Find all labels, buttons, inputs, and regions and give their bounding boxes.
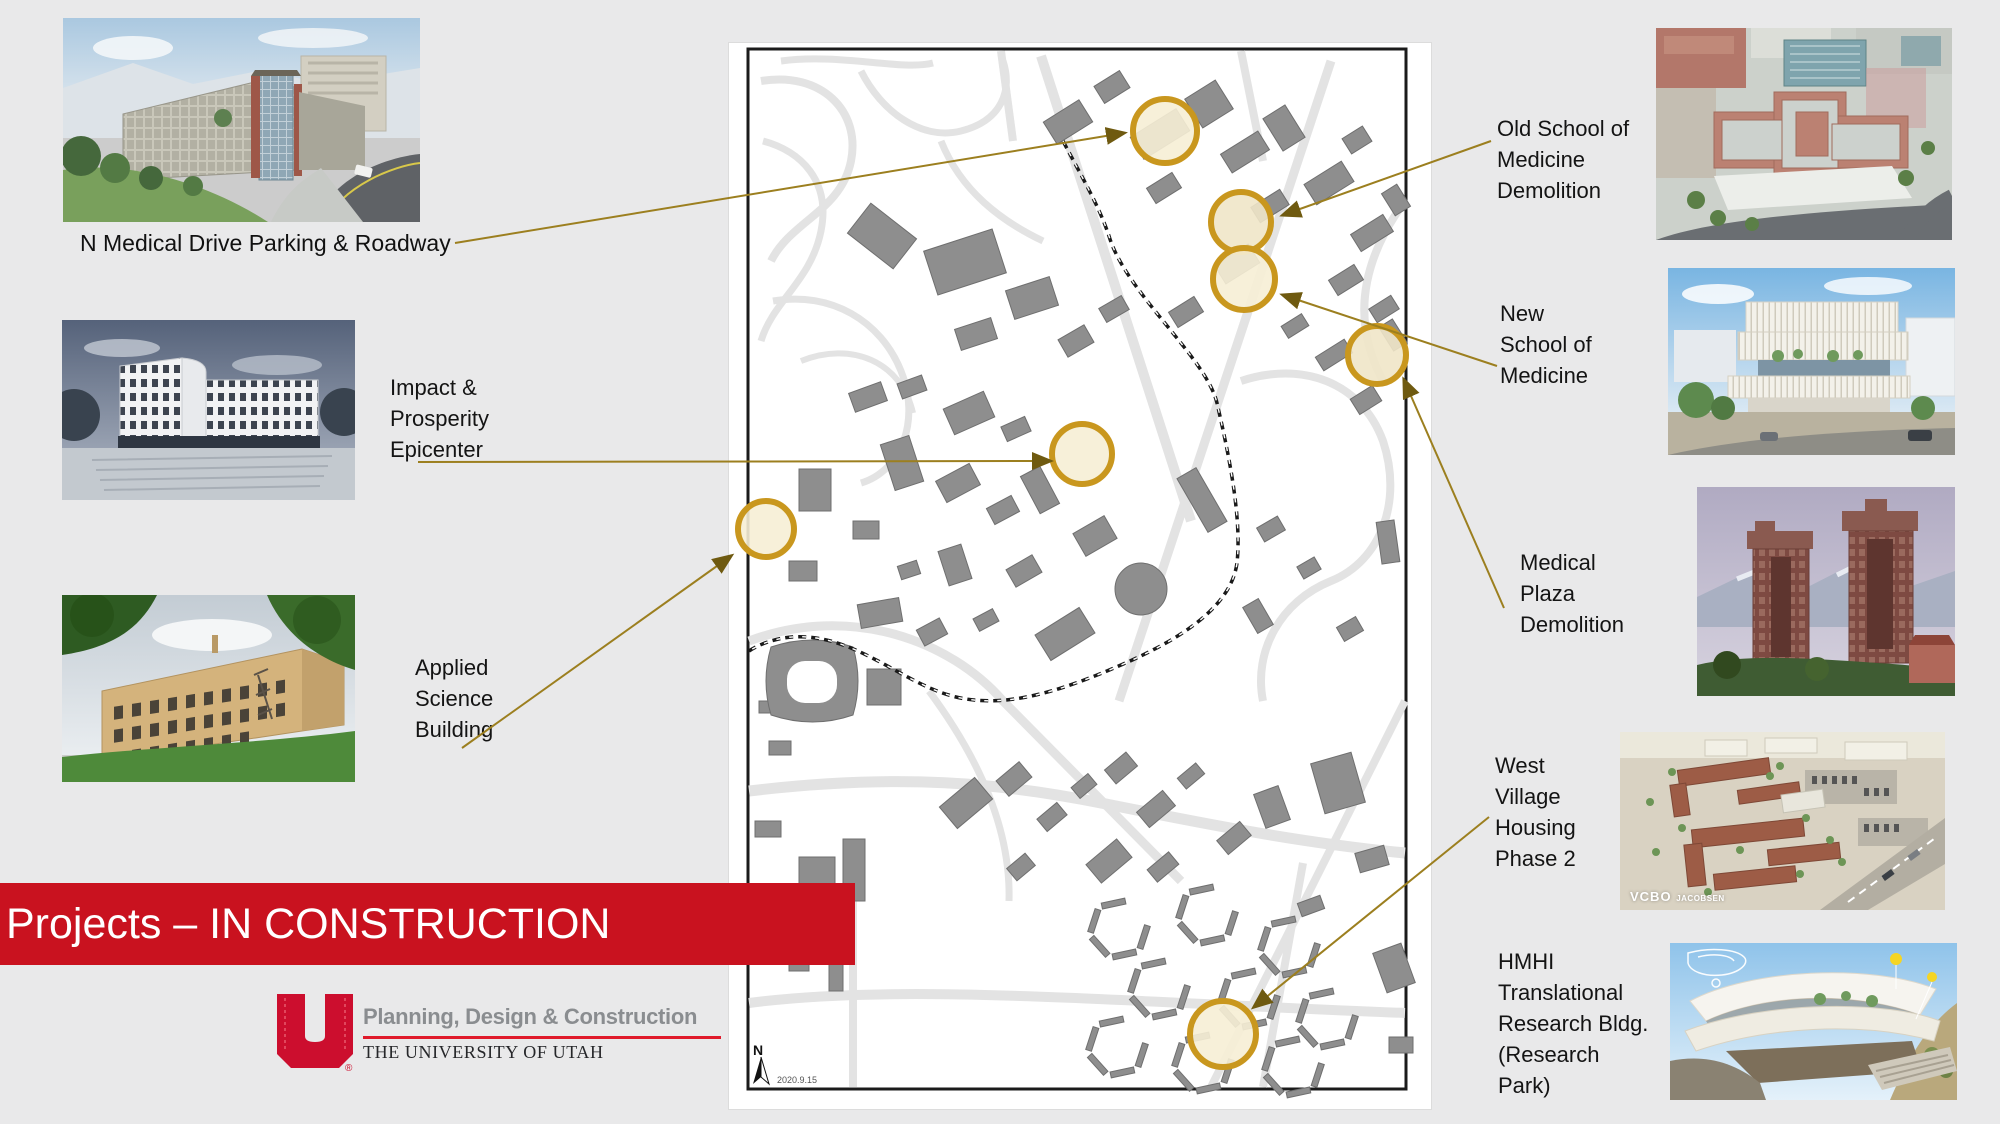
slide-title-banner: Projects – IN CONSTRUCTION bbox=[0, 883, 855, 965]
photo-new-school-of-medicine bbox=[1668, 268, 1955, 455]
caption-n-medical-drive: N Medical Drive Parking & Roadway bbox=[80, 230, 451, 257]
round-building bbox=[1115, 563, 1167, 615]
photo-impact-prosperity-epicenter bbox=[62, 320, 355, 500]
logo-rule bbox=[363, 1036, 721, 1039]
logo-department: Planning, Design & Construction bbox=[363, 1004, 697, 1030]
applied-science-photo bbox=[62, 595, 355, 782]
medical-plaza-photo bbox=[1697, 487, 1955, 696]
u-logo-icon: ® bbox=[275, 992, 355, 1072]
parking-garage-rendering bbox=[63, 18, 420, 222]
hmhi-rendering bbox=[1670, 943, 1957, 1100]
label-new-school-of-medicine: New School of Medicine bbox=[1500, 298, 1592, 391]
logo-institution: THE UNIVERSITY OF UTAH bbox=[363, 1042, 604, 1063]
label-old-school-of-medicine: Old School of Medicine Demolition bbox=[1497, 113, 1629, 206]
label-impact-prosperity-epicenter: Impact & Prosperity Epicenter bbox=[390, 372, 489, 465]
label-medical-plaza-demolition: Medical Plaza Demolition bbox=[1520, 547, 1624, 640]
slide-title: Projects – IN CONSTRUCTION bbox=[0, 900, 610, 949]
photo-applied-science-building bbox=[62, 595, 355, 782]
label-hmhi-translational-research: HMHI Translational Research Bldg. (Resea… bbox=[1498, 946, 1648, 1101]
label-applied-science-building: Applied Science Building bbox=[415, 652, 493, 745]
new-som-rendering bbox=[1668, 268, 1955, 455]
label-west-village-housing: West Village Housing Phase 2 bbox=[1495, 750, 1576, 874]
photo-west-village-housing: VCBO JACOBSEN bbox=[1620, 732, 1945, 910]
epicenter-rendering bbox=[62, 320, 355, 500]
north-label: N bbox=[753, 1042, 763, 1058]
west-village-aerial bbox=[1620, 732, 1945, 910]
photo-n-medical-drive-parking bbox=[63, 18, 420, 222]
registered-mark: ® bbox=[345, 1063, 353, 1072]
stadium-field bbox=[787, 661, 837, 703]
photo-medical-plaza-towers bbox=[1697, 487, 1955, 696]
photo-credit: VCBO JACOBSEN bbox=[1630, 889, 1725, 904]
leader-applied-science bbox=[462, 556, 731, 748]
university-logo: ® Planning, Design & Construction THE UN… bbox=[275, 992, 745, 1082]
old-som-aerial bbox=[1656, 28, 1952, 240]
photo-hmhi-research-building bbox=[1670, 943, 1957, 1100]
photo-old-school-of-medicine bbox=[1656, 28, 1952, 240]
map-date: 2020.9.15 bbox=[777, 1075, 817, 1085]
